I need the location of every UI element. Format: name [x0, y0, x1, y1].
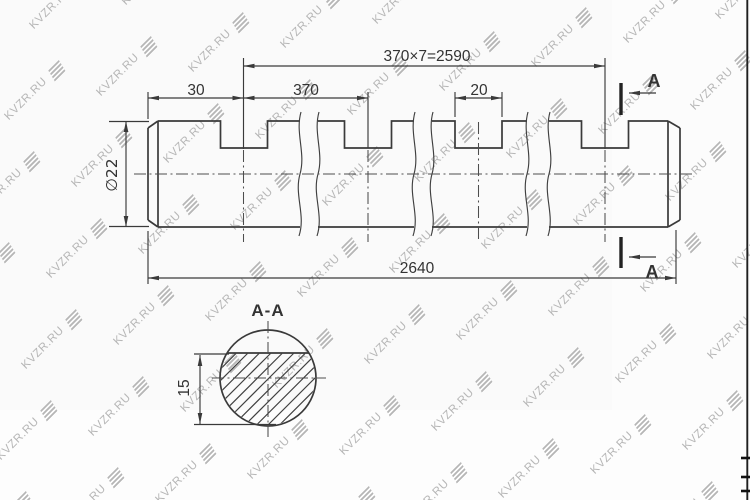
drawing-canvas: KVZR.RUKVZR.RUKVZR.RUKVZR.RUKVZR.RUKVZR.… [0, 0, 750, 500]
notch-segment-1 [158, 121, 300, 148]
dim-30-label: 30 [187, 82, 205, 99]
shaft-front-view: 370×7=2590 30 370 20 2640 ∅22 A A [103, 48, 692, 284]
section-hatching [140, 354, 363, 439]
dim-2640-label: 2640 [400, 260, 435, 277]
dim-370-label: 370 [293, 82, 319, 99]
dim-20-label: 20 [470, 82, 488, 99]
section-centerlines [212, 321, 326, 437]
scan-edge-artifact [741, 0, 750, 500]
section-cut-marks: A A [621, 71, 661, 282]
section-title: A-A [251, 301, 284, 320]
dim-15-label: 15 [176, 379, 193, 396]
section-letter-bottom: A [646, 262, 659, 282]
notch-segment-4 [549, 121, 668, 148]
section-view-a-a: A-A [140, 301, 363, 439]
notch-segment-3 [432, 121, 527, 148]
technical-drawing: 370×7=2590 30 370 20 2640 ∅22 A A A-A [0, 0, 750, 500]
dim-pattern-label: 370×7=2590 [383, 48, 470, 65]
dim-diameter-label: ∅22 [103, 158, 121, 191]
notch-segment-2 [318, 121, 414, 148]
dimension-lines [126, 66, 676, 278]
section-letter-top: A [648, 71, 661, 91]
